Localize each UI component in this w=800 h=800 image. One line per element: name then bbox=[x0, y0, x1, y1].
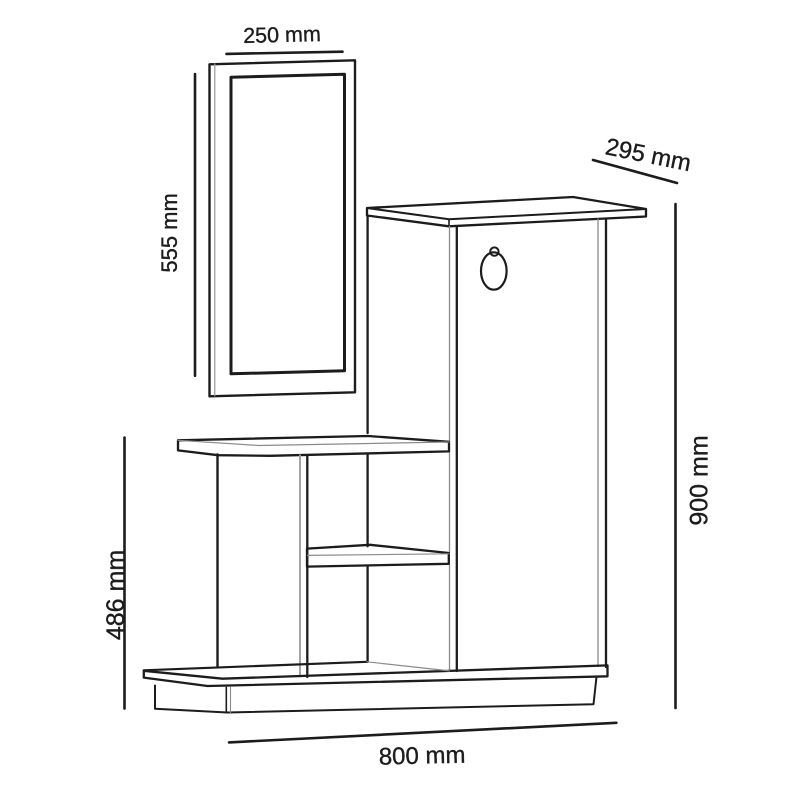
svg-text:295 mm: 295 mm bbox=[603, 133, 693, 177]
svg-text:250 mm: 250 mm bbox=[243, 22, 321, 48]
svg-text:900 mm: 900 mm bbox=[686, 435, 714, 525]
svg-text:555 mm: 555 mm bbox=[157, 193, 182, 272]
svg-text:486 mm: 486 mm bbox=[102, 550, 130, 640]
svg-text:800 mm: 800 mm bbox=[378, 742, 465, 771]
